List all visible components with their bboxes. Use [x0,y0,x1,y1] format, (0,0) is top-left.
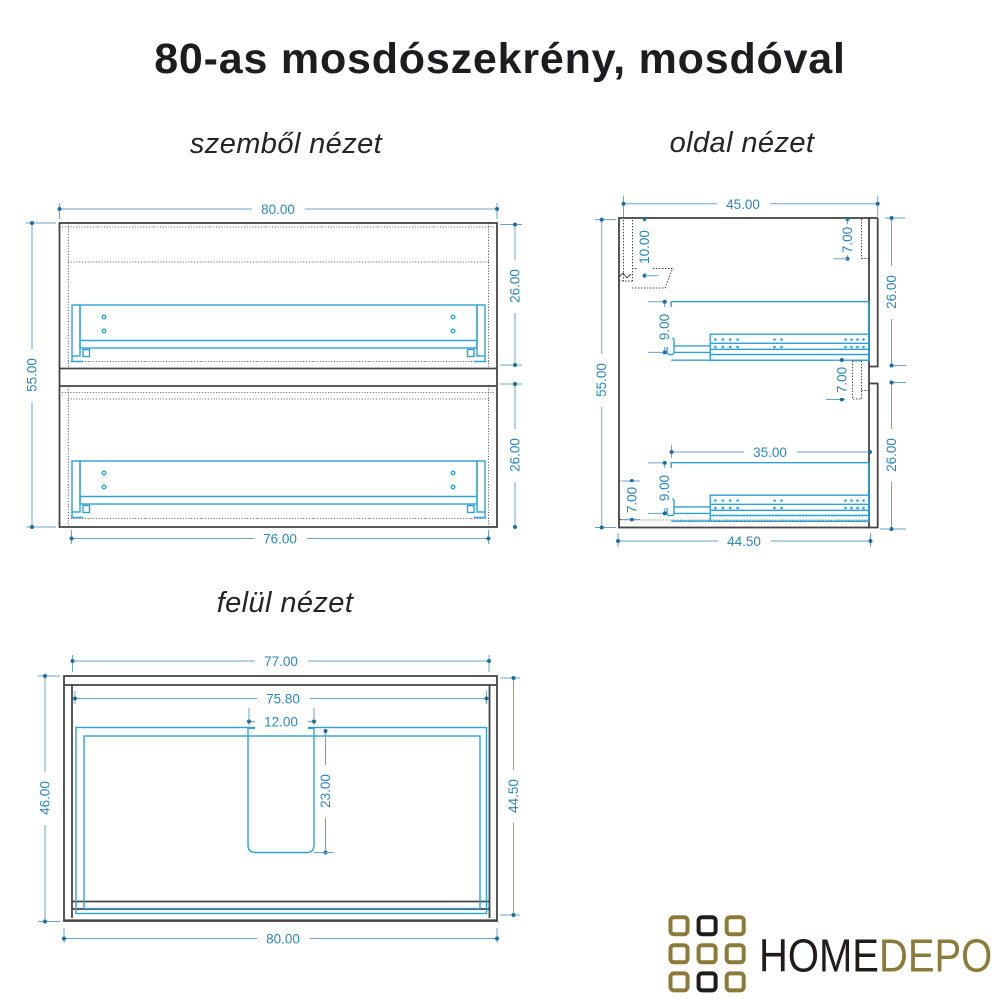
svg-text:9.00: 9.00 [657,475,672,501]
svg-text:80-as mosdószekrény, mosdóval: 80-as mosdószekrény, mosdóval [154,35,846,83]
svg-text:7.00: 7.00 [840,227,855,253]
svg-text:oldal nézet: oldal nézet [670,127,816,159]
svg-text:55.00: 55.00 [25,358,40,392]
svg-text:26.00: 26.00 [508,269,523,303]
svg-text:44.50: 44.50 [727,534,761,549]
svg-text:9.00: 9.00 [657,314,672,340]
svg-text:77.00: 77.00 [264,654,298,669]
svg-text:HOMEDEPO: HOMEDEPO [759,931,992,982]
svg-text:10.00: 10.00 [637,230,652,264]
svg-text:26.00: 26.00 [884,438,899,472]
svg-text:szemből nézet: szemből nézet [190,128,384,160]
svg-text:26.00: 26.00 [508,438,523,472]
svg-text:75.80: 75.80 [266,692,300,707]
svg-text:55.00: 55.00 [594,363,609,397]
svg-text:26.00: 26.00 [884,275,899,309]
svg-text:44.50: 44.50 [506,779,521,813]
svg-text:7.00: 7.00 [834,367,849,393]
svg-text:35.00: 35.00 [753,445,787,460]
svg-text:45.00: 45.00 [726,197,760,212]
svg-text:12.00: 12.00 [264,715,298,730]
svg-text:76.00: 76.00 [263,532,297,547]
svg-text:80.00: 80.00 [261,202,295,217]
svg-text:7.00: 7.00 [624,487,639,513]
svg-text:80.00: 80.00 [266,932,300,947]
svg-text:46.00: 46.00 [38,781,53,815]
svg-text:23.00: 23.00 [318,774,333,808]
svg-text:felül nézet: felül nézet [217,587,355,619]
